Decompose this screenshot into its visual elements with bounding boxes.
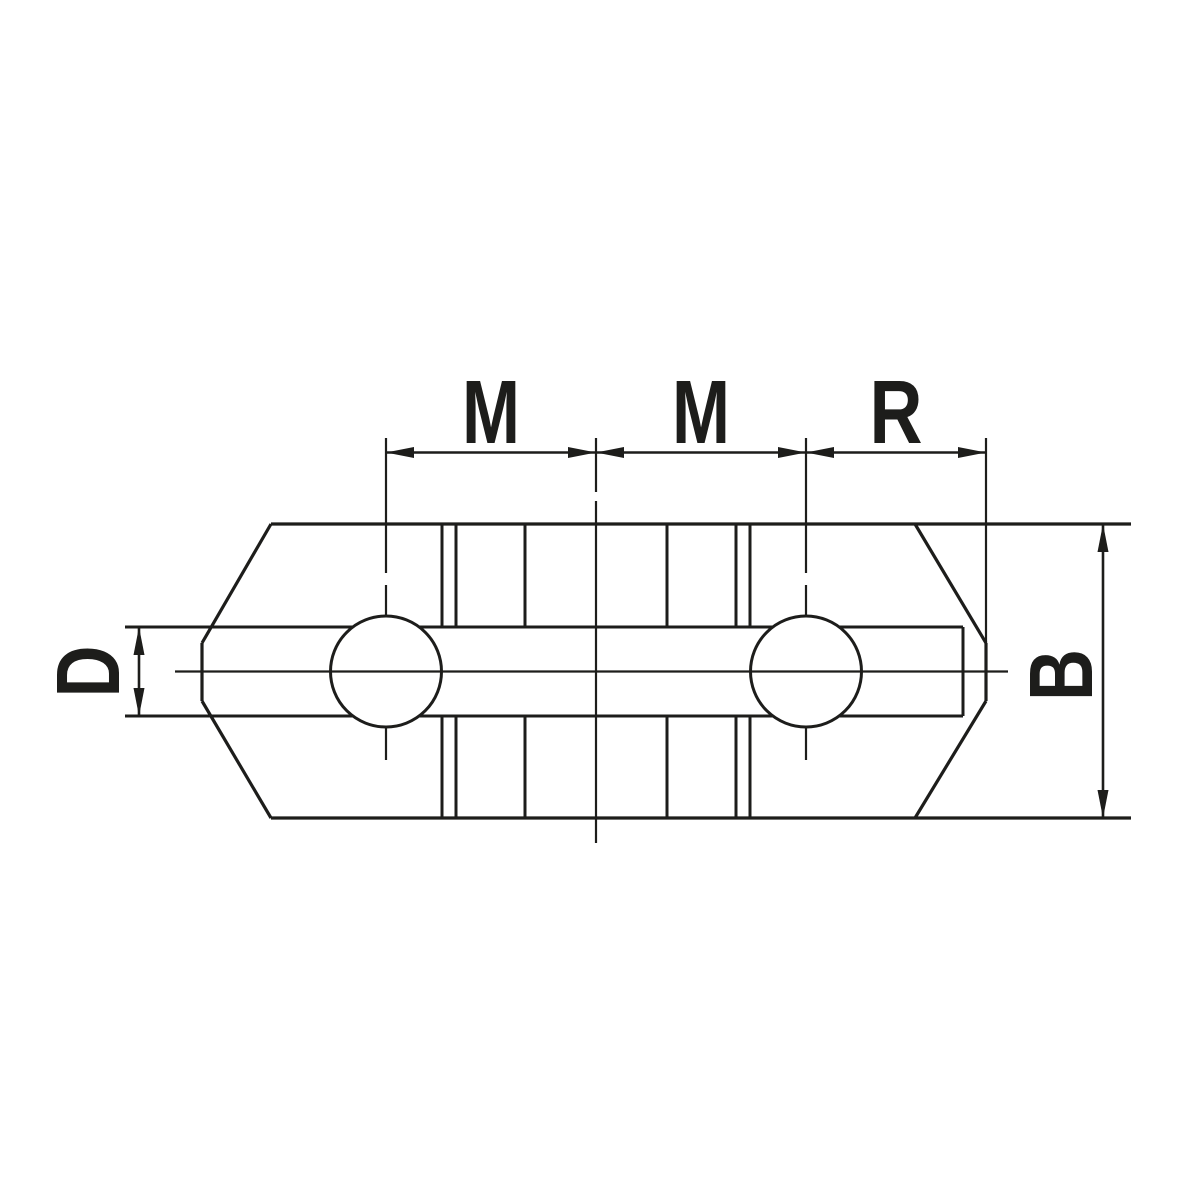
drawing-background xyxy=(0,0,1200,1200)
dimension-label-r: R xyxy=(870,363,923,463)
dimension-label-m2: M xyxy=(672,363,730,463)
dimension-label-b: B xyxy=(1012,649,1112,701)
dimension-label-d: D xyxy=(39,646,139,698)
technical-drawing-page: M M R D B xyxy=(0,0,1200,1200)
top-jaw-dimension-drawing: M M R D B xyxy=(0,0,1200,1200)
dimension-label-m1: M xyxy=(462,363,520,463)
